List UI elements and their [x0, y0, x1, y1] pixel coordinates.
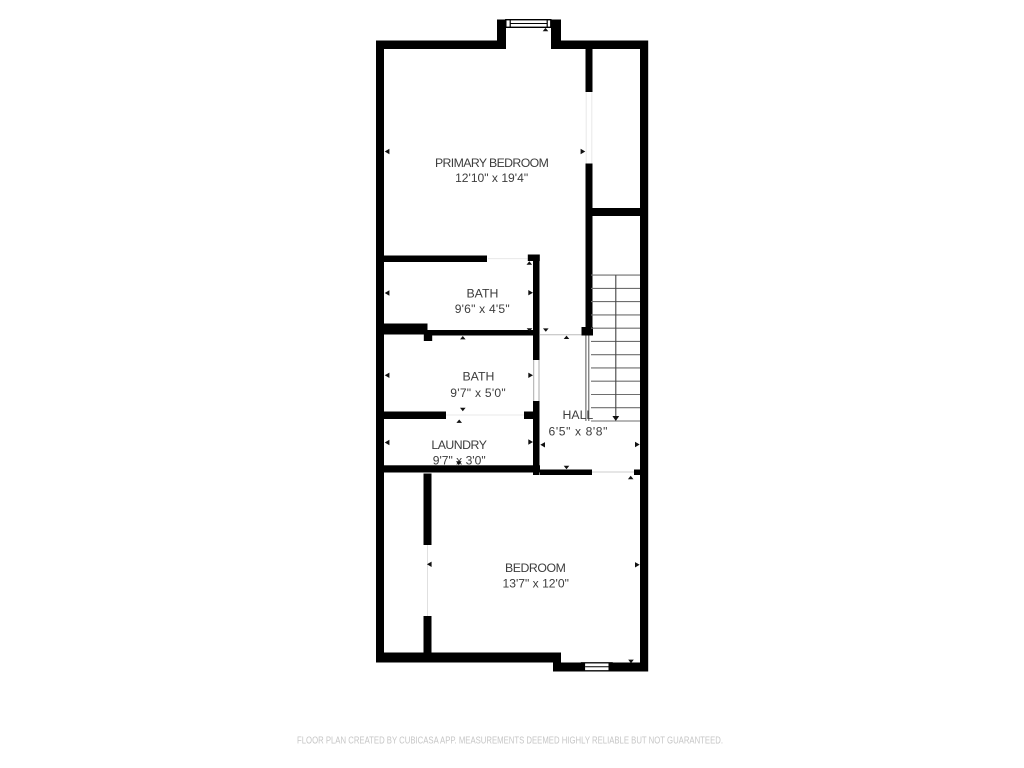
svg-text:BEDROOM: BEDROOM [505, 561, 566, 575]
svg-text:6'5" x 8'8": 6'5" x 8'8" [549, 425, 608, 439]
svg-text:FLOOR PLAN CREATED BY CUBICASA: FLOOR PLAN CREATED BY CUBICASA APP. MEAS… [297, 736, 723, 747]
svg-text:LAUNDRY: LAUNDRY [431, 438, 486, 452]
svg-text:BATH: BATH [462, 370, 494, 384]
svg-text:13'7" x 12'0": 13'7" x 12'0" [503, 576, 569, 590]
svg-text:BATH: BATH [466, 287, 498, 301]
svg-text:9'6" x 4'5": 9'6" x 4'5" [455, 302, 510, 316]
svg-text:12'10" x 19'4": 12'10" x 19'4" [455, 171, 528, 185]
svg-text:HALL: HALL [563, 408, 594, 422]
svg-text:PRIMARY BEDROOM: PRIMARY BEDROOM [435, 156, 549, 170]
svg-text:9'7" x 5'0": 9'7" x 5'0" [450, 386, 506, 400]
